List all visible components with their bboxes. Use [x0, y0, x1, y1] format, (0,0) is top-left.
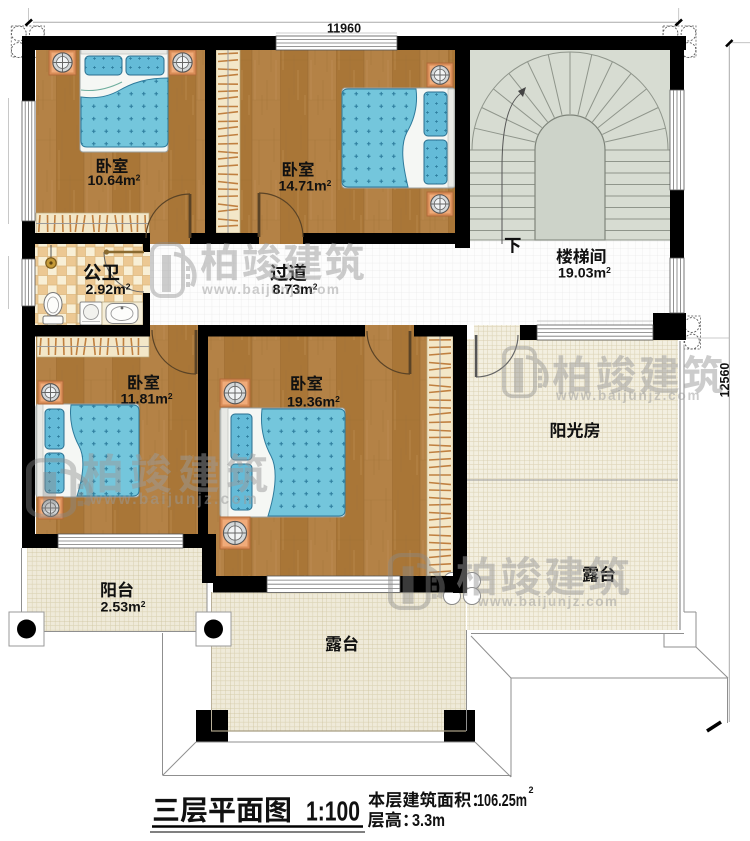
svg-text:1:100: 1:100 [306, 796, 360, 827]
svg-text:www.baijunjz.com: www.baijunjz.com [477, 594, 619, 609]
svg-text:3.3m: 3.3m [412, 810, 445, 830]
svg-text:www.baijunjz.com: www.baijunjz.com [89, 491, 259, 508]
svg-text:10.64m2: 10.64m2 [88, 173, 141, 190]
svg-text:2: 2 [529, 785, 534, 795]
svg-text:106.25m: 106.25m [477, 790, 527, 810]
svg-text:14.71m2: 14.71m2 [279, 178, 332, 195]
svg-text:2.53m2: 2.53m2 [101, 599, 146, 616]
svg-text:19.36m2: 19.36m2 [287, 394, 340, 411]
svg-text:2.92m2: 2.92m2 [86, 282, 131, 299]
svg-text:www.baijunjz.com: www.baijunjz.com [201, 282, 340, 297]
svg-text:11960: 11960 [327, 22, 361, 36]
svg-text:11.81m2: 11.81m2 [121, 391, 173, 408]
svg-text:www.baijunjz.com: www.baijunjz.com [555, 388, 701, 403]
svg-text:19.03m2: 19.03m2 [558, 265, 611, 282]
